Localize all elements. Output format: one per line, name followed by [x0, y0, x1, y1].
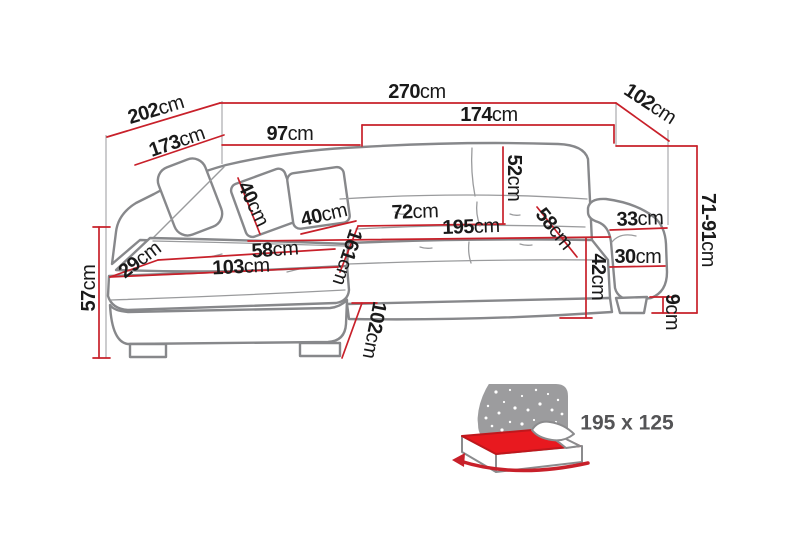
sofa-drawing [108, 143, 667, 357]
dim-label-30: 30cm [615, 247, 662, 267]
dim-label-9: 9cm [662, 294, 682, 330]
dim-label-195: 195cm [442, 216, 500, 238]
dim-label-42: 42cm [588, 254, 608, 301]
sofa-dimension-diagram: 202cm 270cm 102cm 173cm 97cm 174cm 52cm … [0, 0, 800, 533]
right-foot [616, 297, 647, 313]
sleeping-area-size: 195 x 125 [580, 413, 673, 434]
dim-label-103: 103cm [212, 256, 270, 279]
chaise-leg-left [130, 344, 166, 357]
dim-label-97: 97cm [267, 124, 314, 144]
dim-label-71-91: 71-91cm [698, 193, 718, 267]
dim-label-52: 52cm [504, 155, 524, 202]
unfold-arrow-head [452, 453, 465, 467]
dim-label-72: 72cm [391, 201, 439, 223]
chaise-leg-right [300, 343, 340, 356]
dim-label-174: 174cm [460, 105, 517, 125]
dim-label-57: 57cm [79, 265, 99, 312]
sleeping-function-icon [452, 382, 588, 472]
dim-label-33: 33cm [616, 208, 664, 230]
dim-label-270: 270cm [388, 82, 445, 102]
